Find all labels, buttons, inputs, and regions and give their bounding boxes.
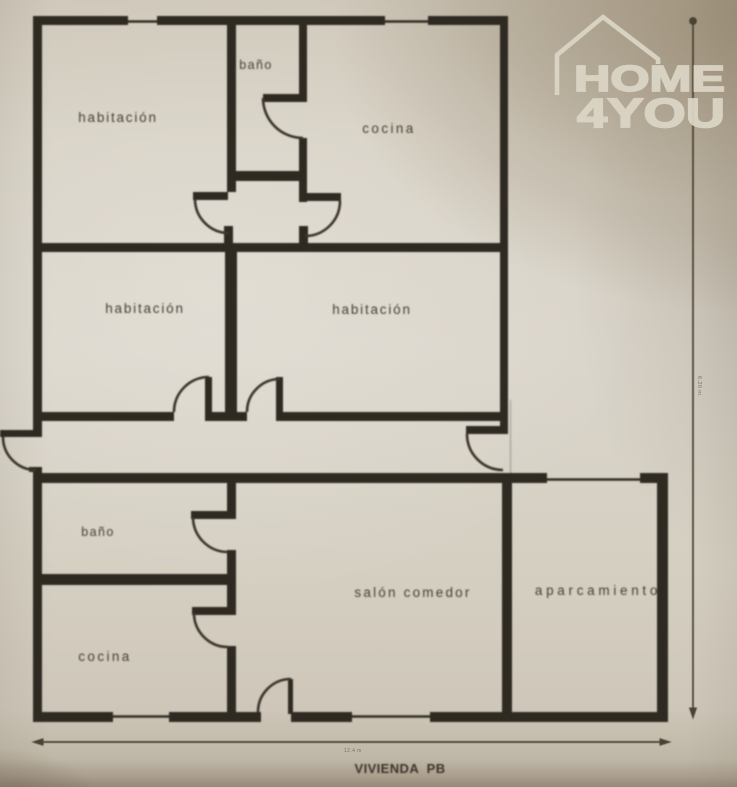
svg-text:VIVIENDA PB: VIVIENDA PB	[355, 761, 446, 776]
svg-text:6.20 m: 6.20 m	[696, 376, 702, 395]
svg-text:aparcamiento: aparcamiento	[535, 583, 661, 598]
svg-text:12.4 m: 12.4 m	[344, 748, 362, 754]
svg-text:4YOU: 4YOU	[577, 90, 725, 136]
svg-text:habitación: habitación	[105, 301, 185, 316]
svg-text:habitación: habitación	[332, 302, 412, 317]
svg-text:habitación: habitación	[78, 110, 158, 125]
svg-text:cocina: cocina	[362, 121, 415, 136]
svg-text:salón comedor: salón comedor	[354, 585, 471, 600]
svg-text:baño: baño	[239, 58, 272, 72]
svg-text:baño: baño	[81, 525, 114, 539]
svg-text:cocina: cocina	[78, 649, 131, 664]
